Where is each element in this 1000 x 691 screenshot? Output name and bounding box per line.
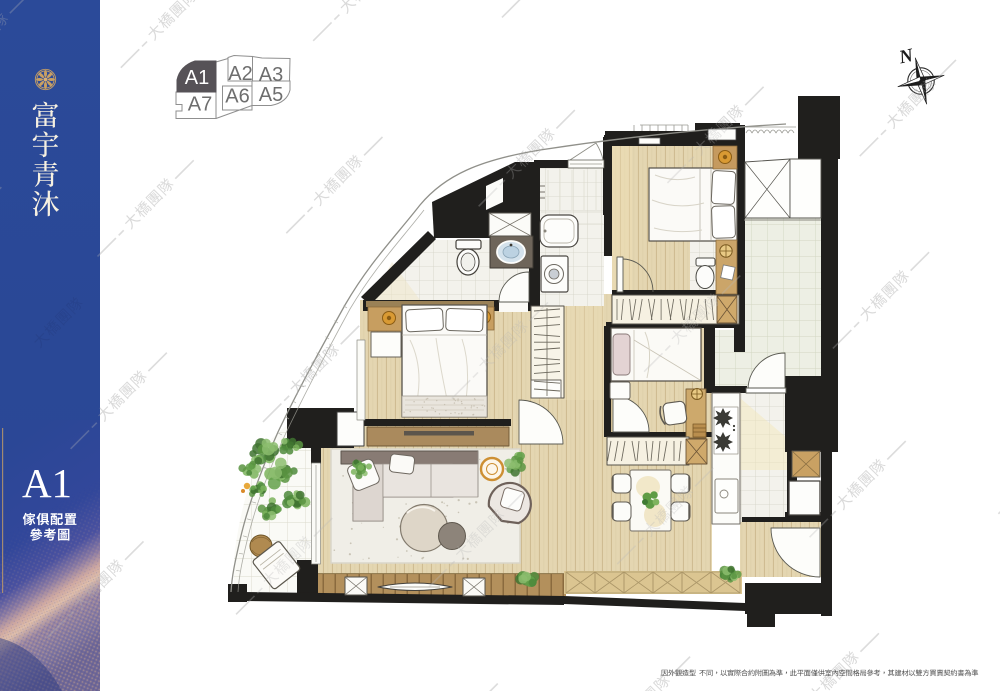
- svg-text:N: N: [896, 45, 916, 69]
- svg-text:A3: A3: [259, 64, 283, 86]
- svg-text:A2: A2: [228, 63, 252, 85]
- svg-text:A6: A6: [225, 86, 249, 108]
- svg-text:A1: A1: [22, 460, 72, 506]
- svg-text:A5: A5: [259, 84, 283, 106]
- svg-text:A7: A7: [188, 94, 212, 116]
- svg-text:A1: A1: [185, 67, 209, 89]
